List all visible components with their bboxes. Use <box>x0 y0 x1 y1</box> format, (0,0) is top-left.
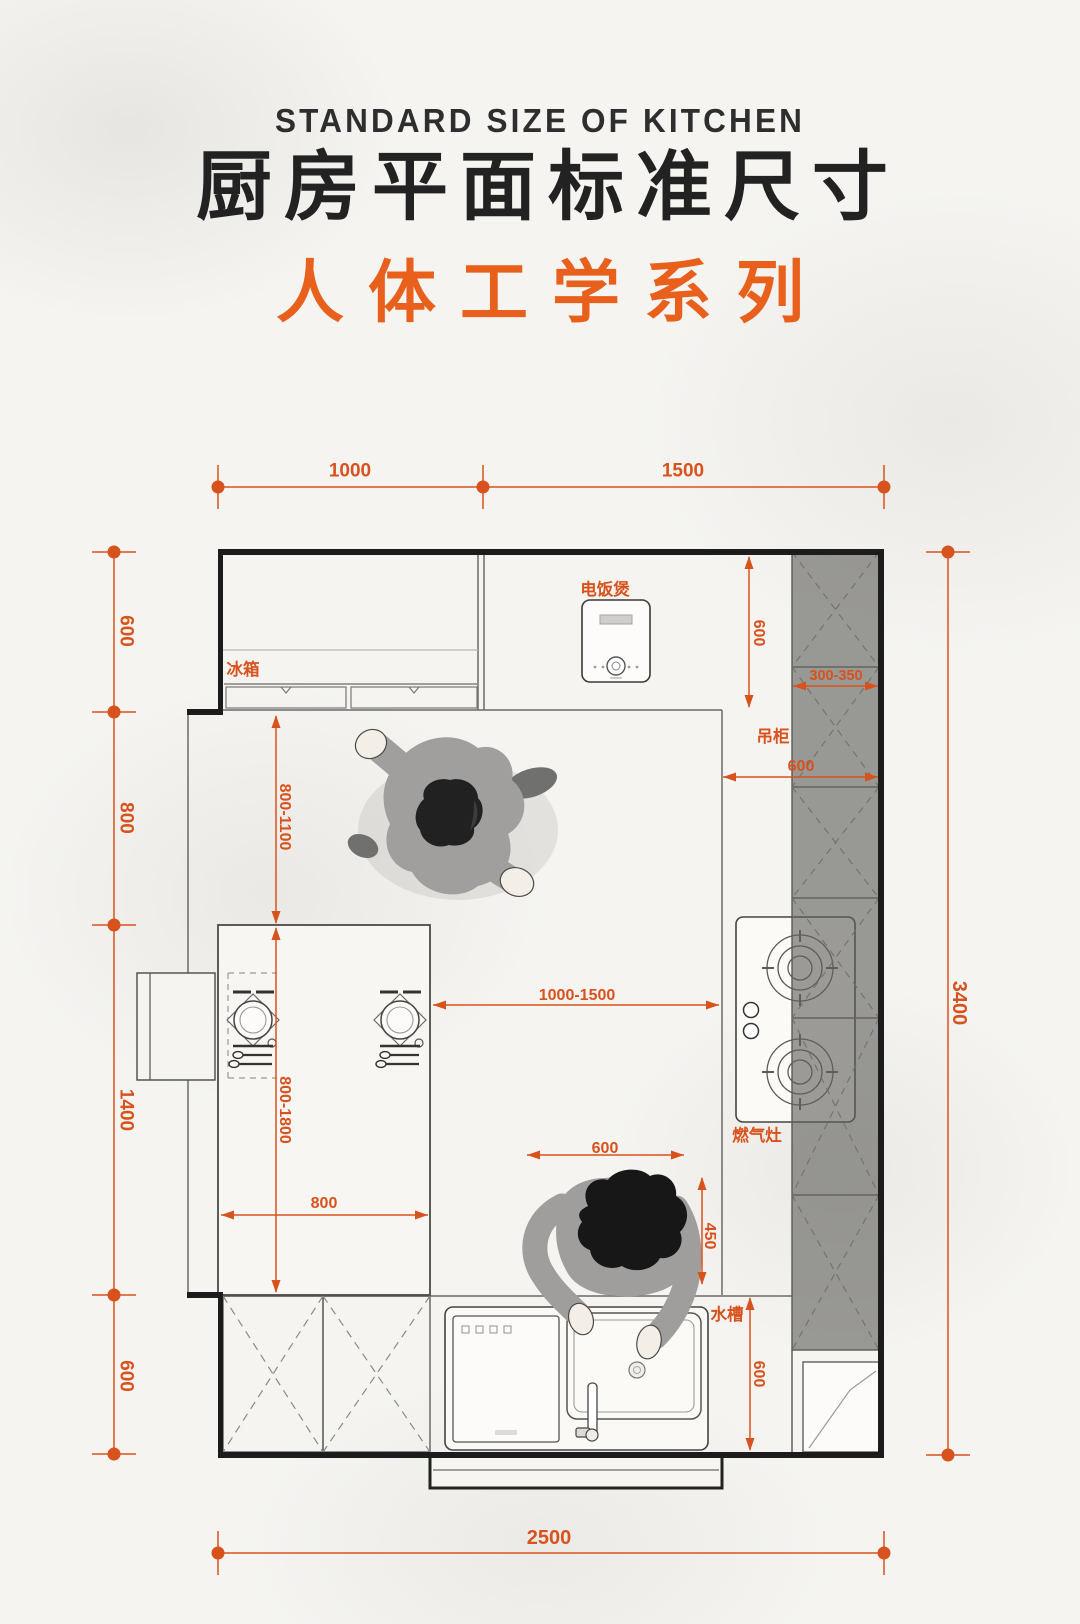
rice-cooker-icon <box>582 600 650 682</box>
page-title-en: STANDARD SIZE OF KITCHEN <box>275 105 805 139</box>
dim-bottom-counter-depth: 600 <box>750 1361 766 1388</box>
floor-plan-drawing <box>0 0 1080 1624</box>
dim-walkway-island: 1000-1500 <box>539 988 616 1004</box>
dim-left-600b: 600 <box>117 1360 136 1392</box>
base-cabinets <box>223 1296 430 1452</box>
dim-left-800: 800 <box>117 802 136 834</box>
label-rice-cooker: 电饭煲 <box>580 582 630 599</box>
label-gas-stove: 燃气灶 <box>732 1128 782 1145</box>
dim-counter-depth-top: 600 <box>750 620 766 647</box>
label-sink: 水槽 <box>711 1307 744 1324</box>
person-walking <box>344 724 561 901</box>
dim-sink-reach: 450 <box>701 1223 717 1250</box>
dim-left-600a: 600 <box>117 615 136 647</box>
kitchen-infographic-page: { "page": { "background": "#f5f4f1", "ac… <box>0 0 1080 1624</box>
page-subtitle: 人体工学系列 <box>276 259 828 327</box>
dim-top-1500: 1500 <box>662 462 704 481</box>
counter-step <box>430 1455 722 1488</box>
dim-left-1400: 1400 <box>117 1089 136 1131</box>
dim-top-1000: 1000 <box>329 462 371 481</box>
dim-bottom-2500: 2500 <box>527 1528 572 1548</box>
dim-right-counter-depth: 600 <box>788 759 815 775</box>
label-fridge: 冰箱 <box>227 662 260 679</box>
dim-wall-cabinet-depth: 300-350 <box>809 669 862 684</box>
dim-sink-zone-width: 600 <box>592 1141 619 1157</box>
dim-walkway-fridge: 800-1100 <box>276 784 292 851</box>
fridge-zone <box>223 650 478 708</box>
dim-right-3400: 3400 <box>949 981 969 1026</box>
dim-island-width: 800 <box>311 1196 338 1212</box>
page-title-zh: 厨房平面标准尺寸 <box>196 150 900 226</box>
dim-island-length: 800-1800 <box>276 1076 292 1144</box>
label-wall-cabinet: 吊柜 <box>757 729 790 746</box>
corner-cabinet <box>792 1350 879 1452</box>
